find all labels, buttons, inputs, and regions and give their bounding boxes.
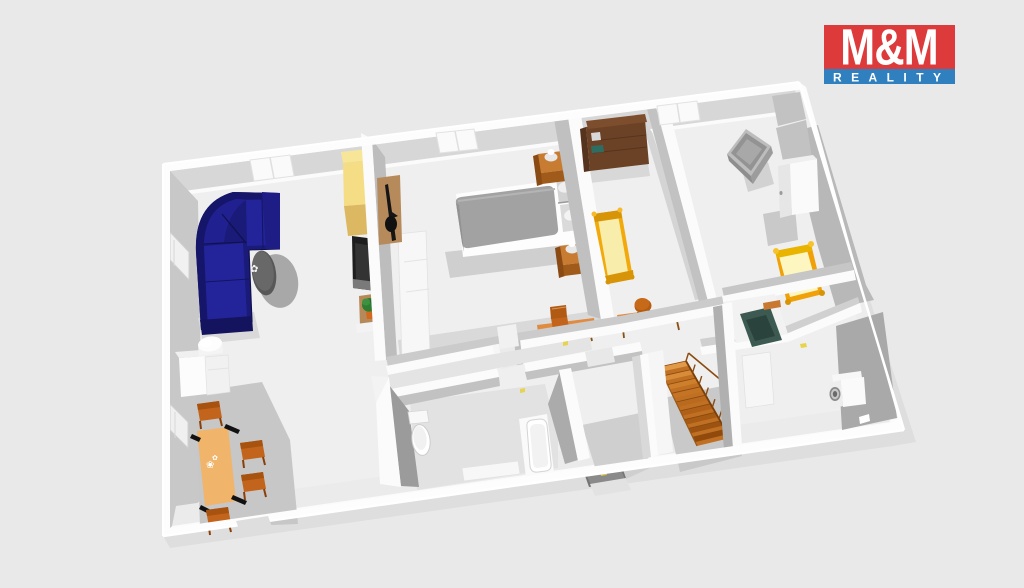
svg-text:M&M: M&M [840,19,937,76]
svg-text:✿: ✿ [250,264,258,275]
svg-text:✿: ✿ [212,455,218,462]
